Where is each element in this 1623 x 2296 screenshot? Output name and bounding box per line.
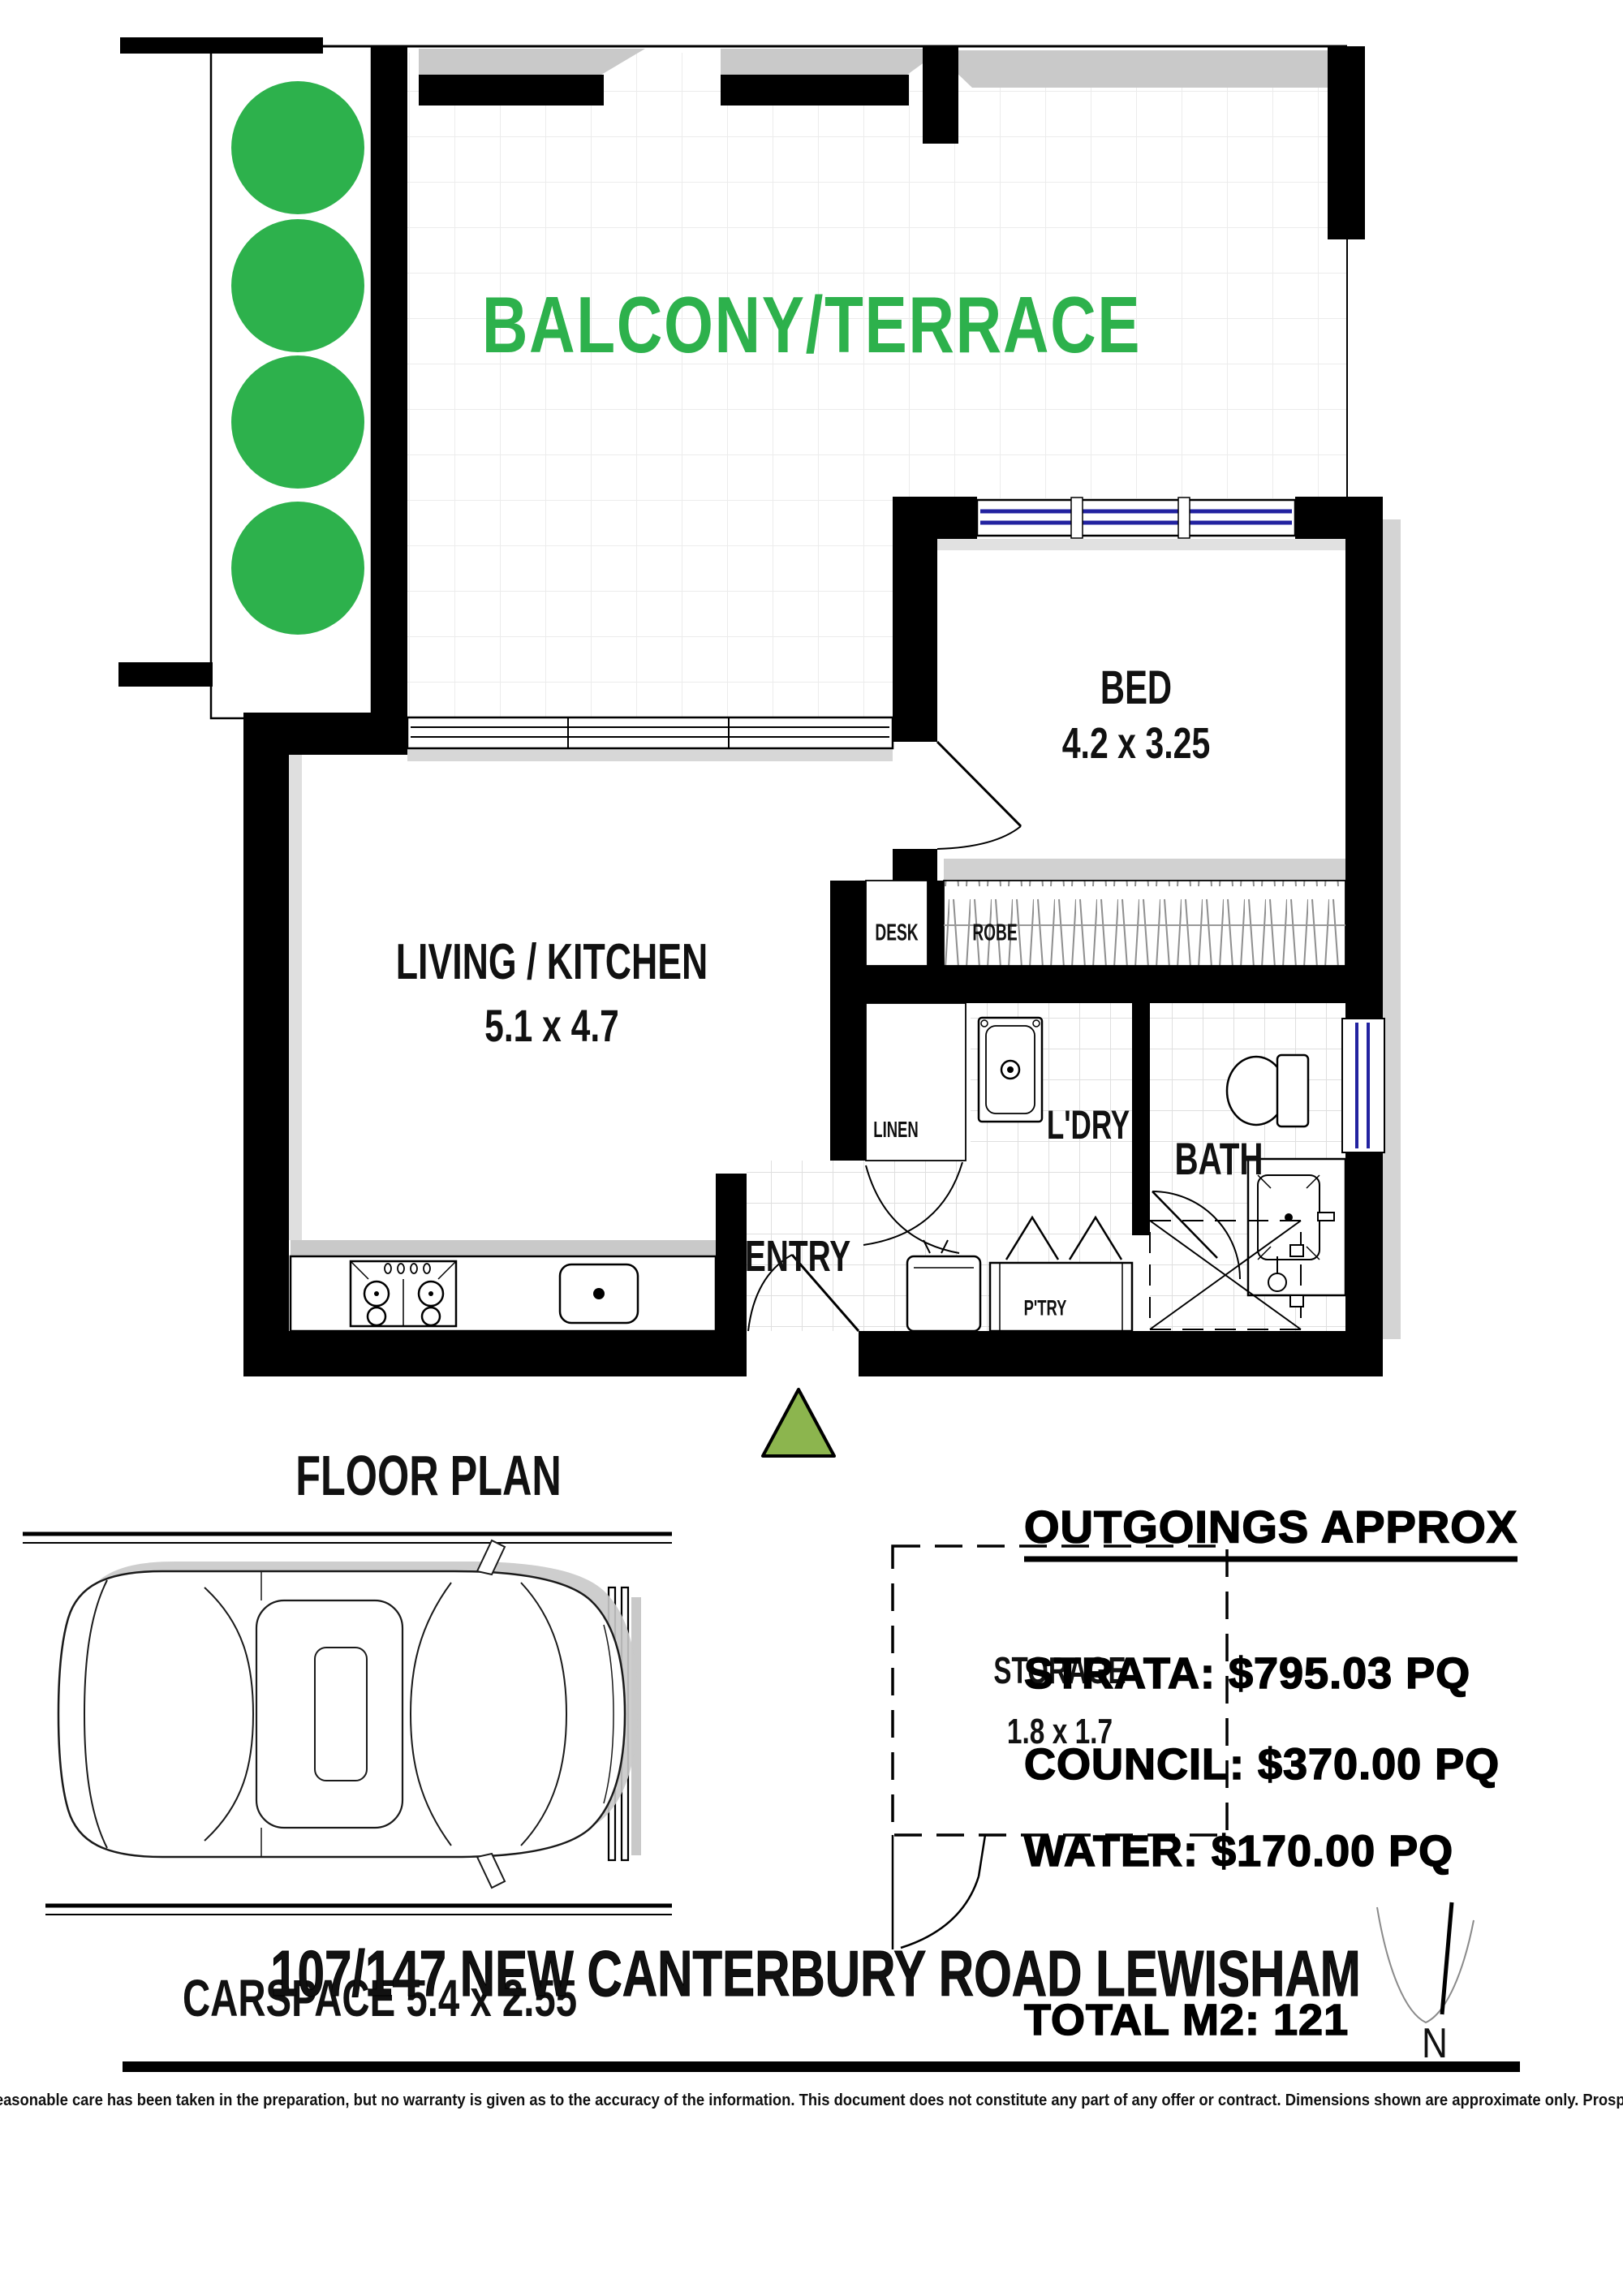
bath-window [1342, 1019, 1384, 1152]
cooktop-icon [351, 1261, 456, 1326]
disclaimer: This diagram is for illustrative purpose… [0, 2092, 1623, 2109]
outgoings-strata: STRATA: $795.03 PQ [1024, 1652, 1470, 1695]
balcony-sliding-door [407, 717, 893, 748]
floor-plan-title: FLOOR PLAN [295, 1447, 562, 1504]
north-label: N [1422, 2022, 1448, 2065]
ptry-label: P'TRY [1024, 1298, 1067, 1320]
balcony-floor [407, 53, 1347, 718]
car-icon [58, 1540, 638, 1888]
ldry-label: L'DRY [1047, 1105, 1130, 1145]
robe-label: ROBE [972, 922, 1017, 946]
living-dims: 5.1 x 4.7 [484, 1003, 619, 1049]
bed-door [937, 742, 1021, 849]
desk-label: DESK [875, 922, 918, 946]
planter-strip [211, 46, 372, 718]
outgoings-council: COUNCIL: $370.00 PQ [1024, 1742, 1500, 1786]
living-label: LIVING / KITCHEN [396, 937, 708, 988]
floor-plan-page: BALCONY/TERRACE BED 4.2 x 3.25 LIVING / … [0, 0, 1623, 2296]
entry-arrow-icon [763, 1389, 834, 1456]
bath-label: BATH [1175, 1136, 1264, 1182]
north-arrow-icon [1377, 1902, 1474, 2022]
address: 107/147 NEW CANTERBURY ROAD LEWISHAM [270, 1941, 1361, 2006]
laundry-sink-icon [979, 1018, 1042, 1122]
outgoings-water: WATER: $170.00 PQ [1024, 1829, 1453, 1873]
bed-window [977, 498, 1295, 538]
balcony-label: BALCONY/TERRACE [482, 285, 1141, 364]
bed-label: BED [1100, 665, 1172, 712]
entry-label: ENTRY [745, 1234, 850, 1278]
divider-bar [123, 2061, 1520, 2072]
outgoings-title: OUTGOINGS APPROX [1024, 1505, 1518, 1562]
bed-dims: 4.2 x 3.25 [1062, 722, 1211, 765]
linen-label: LINEN [873, 1118, 918, 1141]
toilet-icon [1227, 1055, 1308, 1126]
